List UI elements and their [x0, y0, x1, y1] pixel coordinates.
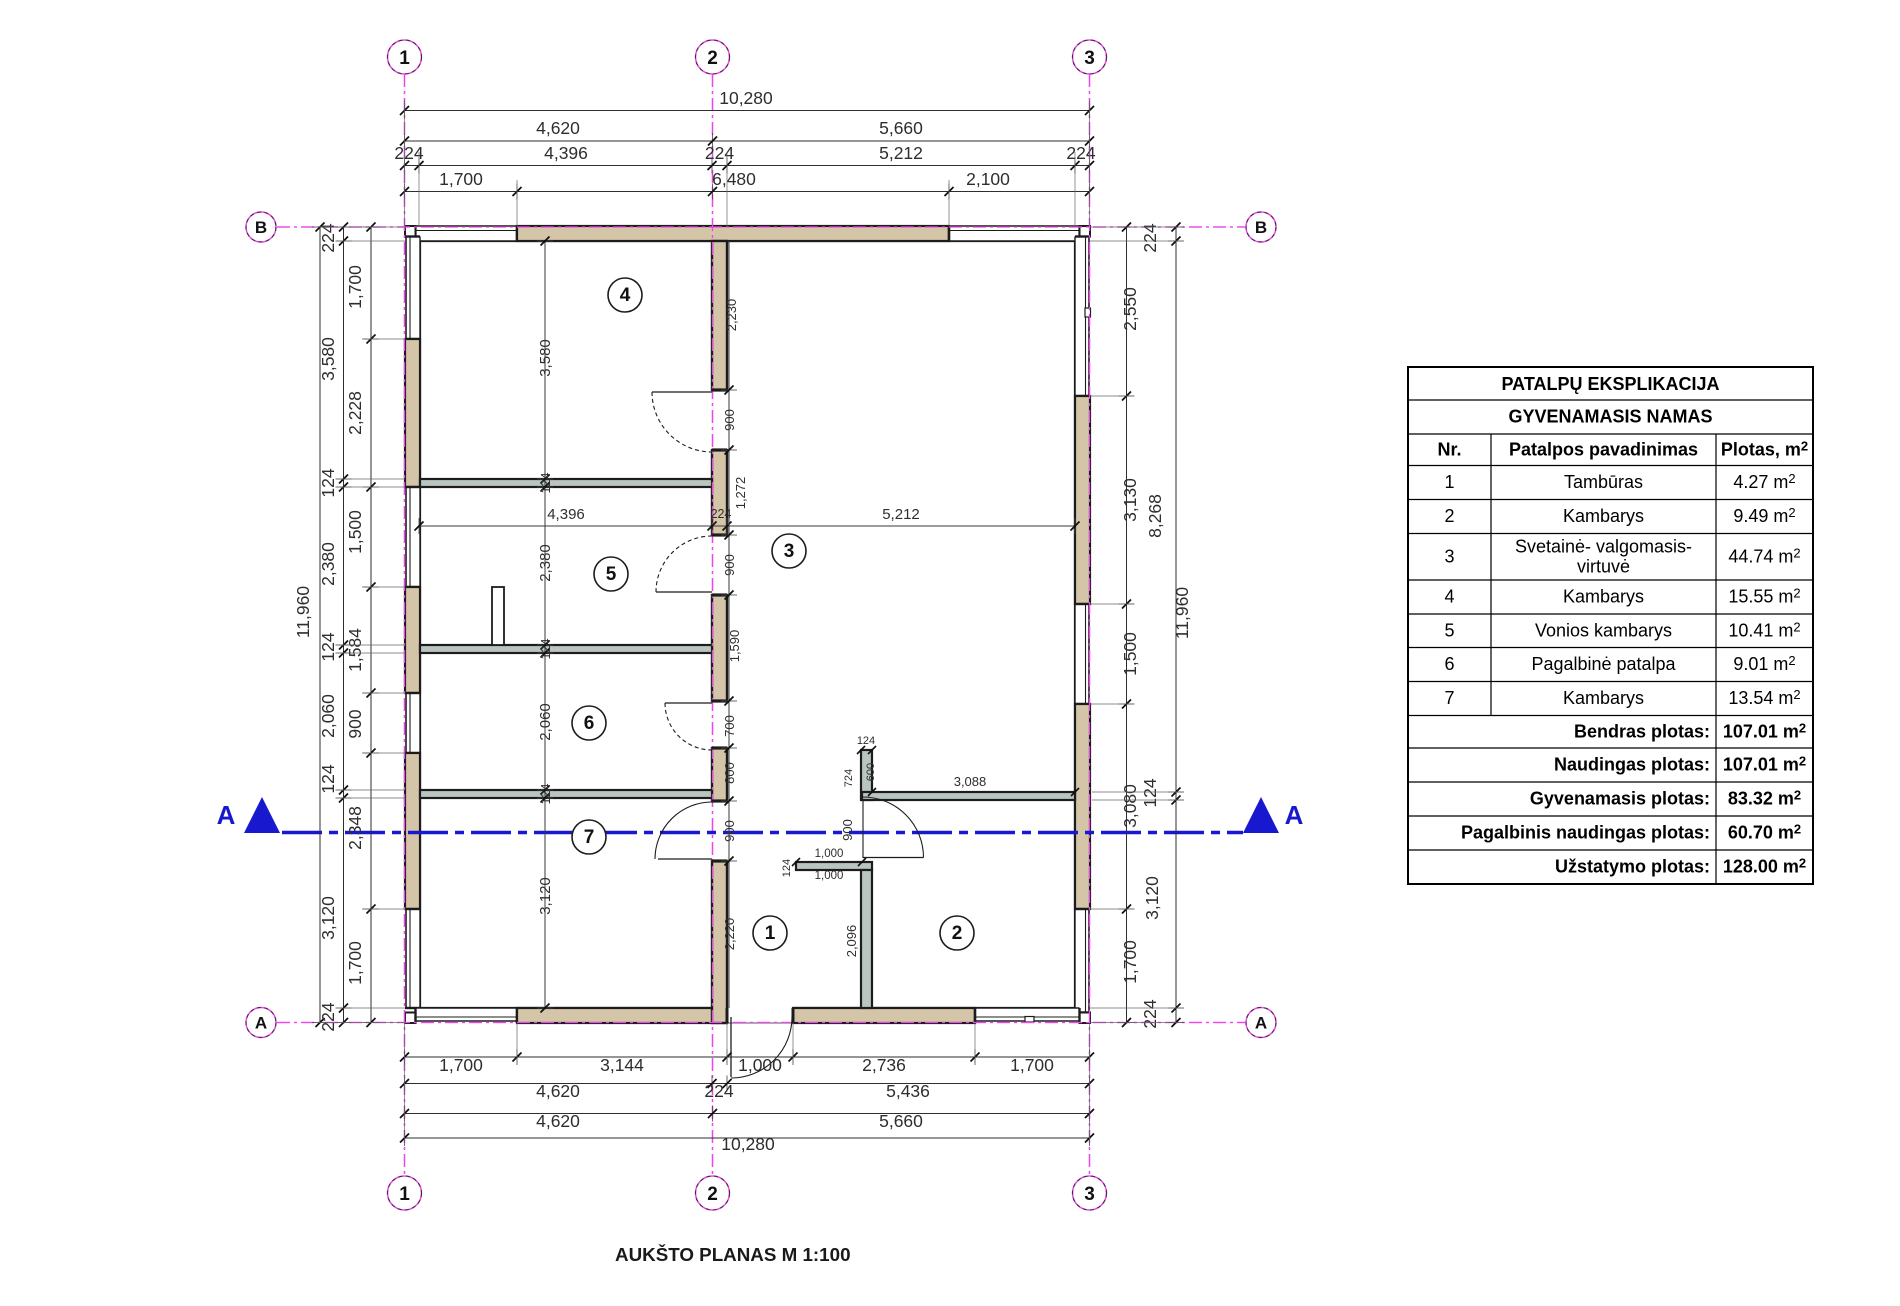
- svg-text:128.00 m2: 128.00 m2: [1723, 856, 1806, 877]
- svg-text:124: 124: [781, 859, 793, 877]
- svg-text:2: 2: [707, 1184, 718, 1205]
- svg-text:3,580: 3,580: [318, 337, 338, 381]
- svg-text:1: 1: [399, 48, 410, 69]
- svg-text:224: 224: [1066, 143, 1095, 163]
- svg-text:Plotas, m2: Plotas, m2: [1721, 439, 1808, 460]
- svg-text:Tambūras: Tambūras: [1564, 472, 1643, 492]
- svg-text:Kambarys: Kambarys: [1563, 688, 1644, 708]
- svg-text:Pagalbinė patalpa: Pagalbinė patalpa: [1531, 654, 1676, 674]
- svg-text:3,088: 3,088: [954, 774, 987, 789]
- svg-text:Patalpos pavadinimas: Patalpos pavadinimas: [1509, 440, 1698, 460]
- svg-text:Užstatymo plotas:: Užstatymo plotas:: [1555, 857, 1710, 877]
- svg-text:4: 4: [1444, 587, 1454, 607]
- svg-text:224: 224: [394, 143, 423, 163]
- svg-text:A: A: [217, 800, 236, 830]
- svg-text:AUKŠTO PLANAS M 1:100: AUKŠTO PLANAS M 1:100: [615, 1244, 851, 1265]
- svg-text:1,584: 1,584: [345, 628, 365, 672]
- svg-text:224: 224: [1140, 223, 1160, 252]
- svg-text:5,436: 5,436: [886, 1081, 930, 1101]
- svg-text:224: 224: [318, 1002, 338, 1031]
- svg-text:GYVENAMASIS NAMAS: GYVENAMASIS NAMAS: [1508, 407, 1712, 427]
- svg-text:3: 3: [1084, 48, 1095, 69]
- svg-text:2,380: 2,380: [318, 542, 338, 586]
- svg-text:7: 7: [584, 827, 595, 848]
- svg-text:124: 124: [857, 735, 875, 747]
- svg-text:Svetainė- valgomasis-: Svetainė- valgomasis-: [1515, 537, 1692, 557]
- svg-text:224: 224: [704, 1081, 733, 1101]
- svg-text:224: 224: [711, 507, 732, 521]
- svg-text:10,280: 10,280: [719, 88, 773, 108]
- svg-text:5: 5: [606, 564, 617, 585]
- svg-text:1,500: 1,500: [345, 510, 365, 554]
- svg-text:44.74 m2: 44.74 m2: [1728, 545, 1800, 566]
- svg-text:2,060: 2,060: [537, 703, 554, 741]
- svg-text:1: 1: [765, 923, 776, 944]
- svg-text:107.01 m2: 107.01 m2: [1723, 754, 1806, 775]
- svg-text:3,120: 3,120: [537, 877, 554, 915]
- svg-text:Kambarys: Kambarys: [1563, 587, 1644, 607]
- svg-text:5,212: 5,212: [879, 143, 923, 163]
- svg-text:1,272: 1,272: [733, 477, 748, 510]
- svg-text:B: B: [1255, 218, 1267, 237]
- svg-text:4: 4: [620, 285, 631, 306]
- svg-text:124: 124: [1140, 778, 1160, 807]
- svg-text:2,060: 2,060: [318, 694, 338, 738]
- svg-text:124: 124: [318, 764, 338, 793]
- svg-text:3,120: 3,120: [1142, 876, 1162, 920]
- svg-text:13.54 m2: 13.54 m2: [1728, 687, 1800, 708]
- svg-text:3,580: 3,580: [537, 339, 554, 377]
- svg-text:1,000: 1,000: [815, 870, 844, 882]
- svg-text:5: 5: [1444, 620, 1454, 640]
- svg-text:Pagalbinis naudingas plotas:: Pagalbinis naudingas plotas:: [1461, 823, 1710, 843]
- svg-text:3: 3: [1084, 1184, 1095, 1205]
- svg-text:Nr.: Nr.: [1437, 440, 1461, 460]
- svg-text:3,130: 3,130: [1120, 478, 1140, 522]
- svg-text:224: 224: [318, 223, 338, 252]
- svg-text:Gyvenamasis plotas:: Gyvenamasis plotas:: [1530, 789, 1710, 809]
- svg-text:900: 900: [345, 709, 365, 738]
- svg-text:124: 124: [318, 632, 338, 661]
- svg-text:A: A: [1255, 1014, 1267, 1033]
- svg-text:1,000: 1,000: [738, 1055, 782, 1075]
- svg-text:6: 6: [584, 713, 595, 734]
- svg-text:900: 900: [840, 819, 855, 841]
- svg-text:124: 124: [318, 468, 338, 497]
- svg-text:6: 6: [1444, 654, 1454, 674]
- svg-text:1,500: 1,500: [1120, 632, 1140, 676]
- svg-text:224: 224: [705, 143, 734, 163]
- svg-text:2,736: 2,736: [862, 1055, 906, 1075]
- svg-text:Vonios kambarys: Vonios kambarys: [1535, 620, 1672, 640]
- svg-text:Naudingas plotas:: Naudingas plotas:: [1554, 755, 1710, 775]
- svg-text:5,212: 5,212: [882, 506, 920, 523]
- svg-text:9.49 m2: 9.49 m2: [1733, 505, 1795, 526]
- svg-text:4,620: 4,620: [536, 1111, 580, 1131]
- svg-text:2,348: 2,348: [345, 806, 365, 850]
- svg-text:2,380: 2,380: [537, 544, 554, 582]
- svg-text:virtuvė: virtuvė: [1577, 557, 1630, 577]
- svg-text:3: 3: [1444, 546, 1454, 566]
- svg-text:2,550: 2,550: [1120, 287, 1140, 331]
- svg-text:2,100: 2,100: [966, 169, 1010, 189]
- svg-text:1,700: 1,700: [439, 169, 483, 189]
- svg-text:224: 224: [1140, 999, 1160, 1028]
- svg-text:1,700: 1,700: [345, 941, 365, 985]
- svg-text:2,096: 2,096: [844, 925, 859, 958]
- svg-text:A: A: [1285, 800, 1304, 830]
- svg-text:124: 124: [539, 784, 553, 805]
- svg-text:B: B: [255, 218, 267, 237]
- svg-text:1,000: 1,000: [815, 848, 844, 860]
- svg-text:1: 1: [399, 1184, 410, 1205]
- svg-text:10.41 m2: 10.41 m2: [1728, 619, 1800, 640]
- svg-text:PATALPŲ EKSPLIKACIJA: PATALPŲ EKSPLIKACIJA: [1501, 374, 1719, 394]
- svg-text:4,396: 4,396: [544, 143, 588, 163]
- svg-text:1,700: 1,700: [345, 265, 365, 309]
- svg-text:Bendras plotas:: Bendras plotas:: [1574, 721, 1710, 741]
- svg-text:10,280: 10,280: [721, 1134, 775, 1154]
- svg-text:4,620: 4,620: [536, 1081, 580, 1101]
- svg-text:724: 724: [843, 769, 855, 787]
- svg-text:2: 2: [1444, 506, 1454, 526]
- svg-text:107.01 m2: 107.01 m2: [1723, 720, 1806, 741]
- svg-text:1: 1: [1444, 472, 1454, 492]
- svg-text:11,960: 11,960: [1172, 587, 1192, 639]
- svg-text:15.55 m2: 15.55 m2: [1728, 586, 1800, 607]
- svg-text:8,268: 8,268: [1145, 494, 1165, 538]
- svg-text:2: 2: [952, 923, 963, 944]
- svg-text:1,700: 1,700: [1010, 1055, 1054, 1075]
- svg-text:124: 124: [539, 639, 553, 660]
- svg-text:3,144: 3,144: [600, 1055, 644, 1075]
- svg-text:83.32 m2: 83.32 m2: [1728, 788, 1801, 809]
- svg-text:3,080: 3,080: [1120, 784, 1140, 828]
- svg-text:4,396: 4,396: [547, 506, 585, 523]
- svg-text:5,660: 5,660: [879, 118, 923, 138]
- svg-text:9.01 m2: 9.01 m2: [1733, 653, 1795, 674]
- svg-text:1,700: 1,700: [1120, 940, 1140, 984]
- svg-text:11,960: 11,960: [293, 586, 313, 638]
- svg-text:5,660: 5,660: [879, 1111, 923, 1131]
- svg-text:4,620: 4,620: [536, 118, 580, 138]
- svg-text:2,228: 2,228: [345, 391, 365, 435]
- svg-text:Kambarys: Kambarys: [1563, 506, 1644, 526]
- svg-text:3: 3: [784, 541, 795, 562]
- svg-text:1,700: 1,700: [439, 1055, 483, 1075]
- svg-text:4.27 m2: 4.27 m2: [1733, 471, 1795, 492]
- svg-text:6,480: 6,480: [712, 169, 756, 189]
- svg-text:A: A: [255, 1014, 267, 1033]
- svg-text:7: 7: [1444, 688, 1454, 708]
- svg-text:60.70 m2: 60.70 m2: [1728, 822, 1801, 843]
- svg-text:2,230: 2,230: [724, 299, 739, 332]
- svg-text:124: 124: [539, 473, 553, 494]
- svg-text:3,120: 3,120: [318, 896, 338, 940]
- svg-text:600: 600: [865, 763, 877, 781]
- svg-text:2: 2: [707, 48, 718, 69]
